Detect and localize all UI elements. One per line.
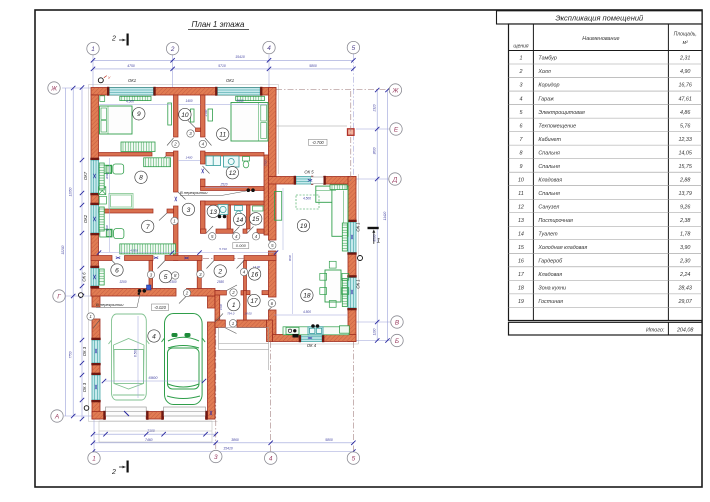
svg-text:2: 2 <box>518 69 522 75</box>
svg-text:ОК7: ОК7 <box>83 171 88 180</box>
svg-text:7520: 7520 <box>264 159 268 166</box>
svg-text:15: 15 <box>252 216 260 223</box>
svg-text:2,38: 2,38 <box>679 218 691 224</box>
svg-text:9: 9 <box>519 164 522 170</box>
svg-text:9000: 9000 <box>288 254 292 261</box>
svg-text:2: 2 <box>185 291 189 296</box>
svg-text:6: 6 <box>115 267 119 274</box>
svg-text:11: 11 <box>518 191 524 197</box>
svg-text:Кладовая: Кладовая <box>538 272 562 278</box>
svg-text:Туалет: Туалет <box>538 231 558 237</box>
svg-text:2: 2 <box>173 142 177 147</box>
svg-text:Кабинет: Кабинет <box>538 137 561 143</box>
svg-text:3940: 3940 <box>236 99 243 103</box>
svg-text:4750: 4750 <box>127 64 135 68</box>
svg-text:Кладовая: Кладовая <box>538 177 562 183</box>
svg-text:ОК1: ОК1 <box>226 78 234 83</box>
svg-text:8: 8 <box>139 175 143 182</box>
svg-text:Спальня: Спальня <box>538 164 560 170</box>
svg-text:4.500: 4.500 <box>303 197 311 201</box>
svg-text:4.500: 4.500 <box>130 249 138 253</box>
svg-text:12050: 12050 <box>69 187 73 196</box>
svg-text:19: 19 <box>518 299 524 305</box>
svg-text:Коридор: Коридор <box>538 83 559 89</box>
svg-text:15,75: 15,75 <box>678 164 692 170</box>
svg-text:11: 11 <box>219 132 226 139</box>
svg-text:3200: 3200 <box>119 280 126 284</box>
svg-text:5: 5 <box>164 274 168 281</box>
svg-text:Гараж: Гараж <box>538 96 554 102</box>
svg-text:18: 18 <box>518 286 524 292</box>
svg-text:1,78: 1,78 <box>680 231 691 237</box>
svg-text:ОК 5: ОК 5 <box>304 170 314 175</box>
svg-text:5800: 5800 <box>325 438 333 442</box>
svg-text:11420: 11420 <box>383 211 387 220</box>
svg-text:12: 12 <box>518 204 524 210</box>
svg-text:1500: 1500 <box>219 303 223 310</box>
svg-text:ОК 3: ОК 3 <box>82 346 87 356</box>
svg-text:2100: 2100 <box>204 109 208 117</box>
svg-text:1: 1 <box>519 56 522 62</box>
svg-text:14,05: 14,05 <box>678 150 692 156</box>
svg-text:32200: 32200 <box>61 245 65 254</box>
svg-text:ОК1: ОК1 <box>128 78 136 83</box>
svg-text:15410: 15410 <box>235 55 245 59</box>
svg-text:Электрощитовая: Электрощитовая <box>538 110 585 116</box>
svg-text:2,88: 2,88 <box>679 177 691 183</box>
svg-text:3080: 3080 <box>105 172 109 179</box>
svg-text:5: 5 <box>352 45 356 52</box>
svg-text:17: 17 <box>518 272 525 278</box>
svg-text:5.710: 5.710 <box>219 247 227 251</box>
svg-text:1: 1 <box>232 302 236 309</box>
svg-text:14.00: 14.00 <box>244 312 252 316</box>
svg-text:13,79: 13,79 <box>678 191 692 197</box>
svg-text:Итого:: Итого: <box>646 328 665 334</box>
svg-text:2: 2 <box>217 268 222 275</box>
svg-text:7750: 7750 <box>69 351 73 358</box>
svg-text:29,07: 29,07 <box>677 299 692 305</box>
svg-text:2: 2 <box>170 46 175 53</box>
svg-text:Тамбур: Тамбур <box>538 56 556 62</box>
svg-text:В перекрытии: В перекрытии <box>96 302 124 307</box>
svg-text:2550: 2550 <box>216 280 224 284</box>
svg-text:1400: 1400 <box>186 156 193 160</box>
svg-text:7460: 7460 <box>145 438 153 442</box>
svg-text:Е: Е <box>394 126 399 133</box>
svg-text:5800: 5800 <box>309 64 317 68</box>
svg-text:47,61: 47,61 <box>678 96 692 102</box>
svg-text:15: 15 <box>518 245 525 251</box>
svg-text:2,30: 2,30 <box>679 258 691 264</box>
svg-text:ОК 6: ОК 6 <box>82 272 87 282</box>
svg-text:16: 16 <box>251 271 259 278</box>
svg-text:204,08: 204,08 <box>676 328 694 334</box>
svg-text:12: 12 <box>229 170 237 177</box>
svg-text:3600: 3600 <box>373 147 377 154</box>
svg-text:4,90: 4,90 <box>680 69 691 75</box>
svg-text:10: 10 <box>181 112 189 119</box>
svg-text:15410: 15410 <box>223 447 233 451</box>
svg-text:5,76: 5,76 <box>680 123 691 129</box>
svg-text:ОК2: ОК2 <box>83 214 88 223</box>
svg-text:Спальня: Спальня <box>538 191 560 197</box>
svg-text:Постирочная: Постирочная <box>538 218 573 224</box>
svg-text:Экспликация помещений: Экспликация помещений <box>555 14 644 23</box>
svg-text:18: 18 <box>303 293 311 300</box>
svg-text:6.500: 6.500 <box>134 349 138 357</box>
svg-text:м²: м² <box>683 40 688 46</box>
svg-text:В перекрытии: В перекрытии <box>180 190 208 195</box>
svg-text:4,86: 4,86 <box>680 110 691 116</box>
svg-text:Гостиная: Гостиная <box>538 299 563 305</box>
svg-text:4: 4 <box>269 455 273 462</box>
svg-text:Холл: Холл <box>537 69 550 75</box>
svg-text:13: 13 <box>518 218 524 224</box>
svg-text:7: 7 <box>146 224 150 231</box>
svg-text:3860: 3860 <box>231 438 239 442</box>
svg-text:-0.700: -0.700 <box>312 140 325 145</box>
svg-text:0.000: 0.000 <box>236 243 247 248</box>
svg-text:16,76: 16,76 <box>678 83 692 89</box>
svg-text:2,24: 2,24 <box>679 272 691 278</box>
svg-text:Гардероб: Гардероб <box>538 258 563 264</box>
svg-text:4: 4 <box>267 45 271 52</box>
svg-text:ОК 1: ОК 1 <box>355 222 360 231</box>
svg-text:10: 10 <box>518 177 524 183</box>
svg-text:Б: Б <box>395 338 399 345</box>
svg-text:1: 1 <box>92 455 96 462</box>
svg-text:Ж: Ж <box>391 87 399 94</box>
svg-text:Зона кухни: Зона кухни <box>538 286 566 292</box>
svg-text:4300: 4300 <box>105 224 109 231</box>
svg-text:1400: 1400 <box>185 99 192 103</box>
svg-text:2: 2 <box>111 469 116 476</box>
svg-text:Ж: Ж <box>50 85 58 92</box>
svg-text:4: 4 <box>152 333 156 340</box>
svg-text:6: 6 <box>519 123 522 129</box>
svg-text:Наименование: Наименование <box>582 36 619 42</box>
svg-text:3: 3 <box>214 454 218 461</box>
svg-text:13: 13 <box>210 209 218 216</box>
svg-text:3: 3 <box>187 207 191 214</box>
svg-text:2520: 2520 <box>219 182 227 186</box>
svg-text:8: 8 <box>519 150 522 156</box>
svg-text:3: 3 <box>519 83 522 89</box>
svg-text:2: 2 <box>111 36 116 43</box>
svg-text:28,43: 28,43 <box>677 286 692 292</box>
svg-text:Спальня: Спальня <box>538 150 560 156</box>
svg-text:Г: Г <box>57 293 61 300</box>
svg-text:9,26: 9,26 <box>680 204 691 210</box>
svg-text:2: 2 <box>231 290 235 295</box>
svg-text:4.500: 4.500 <box>303 310 311 314</box>
svg-text:6900: 6900 <box>149 375 159 380</box>
svg-text:В: В <box>395 319 400 326</box>
svg-text:-0.020: -0.020 <box>154 305 167 310</box>
svg-text:1: 1 <box>377 238 381 245</box>
svg-text:4.500: 4.500 <box>126 100 134 104</box>
svg-text:5: 5 <box>352 455 356 462</box>
svg-text:ОК 4: ОК 4 <box>307 343 317 348</box>
svg-text:16: 16 <box>518 258 524 264</box>
svg-text:Техпомещение: Техпомещение <box>538 123 576 129</box>
svg-text:1100: 1100 <box>373 328 377 335</box>
svg-text:Д: Д <box>392 176 398 183</box>
svg-text:2,31: 2,31 <box>679 56 691 62</box>
svg-text:4: 4 <box>519 96 522 102</box>
svg-text:14: 14 <box>518 231 524 237</box>
svg-text:9: 9 <box>137 111 141 118</box>
svg-text:14: 14 <box>236 217 244 224</box>
svg-text:Санузел: Санузел <box>538 204 559 210</box>
svg-text:2320: 2320 <box>373 104 377 112</box>
svg-text:ОК 1: ОК 1 <box>355 279 360 288</box>
svg-text:754.0: 754.0 <box>227 312 235 316</box>
svg-text:17: 17 <box>250 298 258 305</box>
svg-text:19: 19 <box>300 223 308 230</box>
svg-text:12,33: 12,33 <box>678 137 692 143</box>
svg-text:1: 1 <box>91 46 95 53</box>
svg-text:А: А <box>54 413 59 420</box>
svg-text:Холодная кладовая: Холодная кладовая <box>537 245 587 251</box>
svg-text:ОК 3: ОК 3 <box>82 382 87 392</box>
svg-text:щения: щения <box>513 44 529 50</box>
svg-text:5710: 5710 <box>218 64 226 68</box>
svg-text:План 1 этажа: План 1 этажа <box>192 20 246 29</box>
svg-text:3,90: 3,90 <box>680 245 691 251</box>
svg-text:Площадь,: Площадь, <box>674 32 697 38</box>
